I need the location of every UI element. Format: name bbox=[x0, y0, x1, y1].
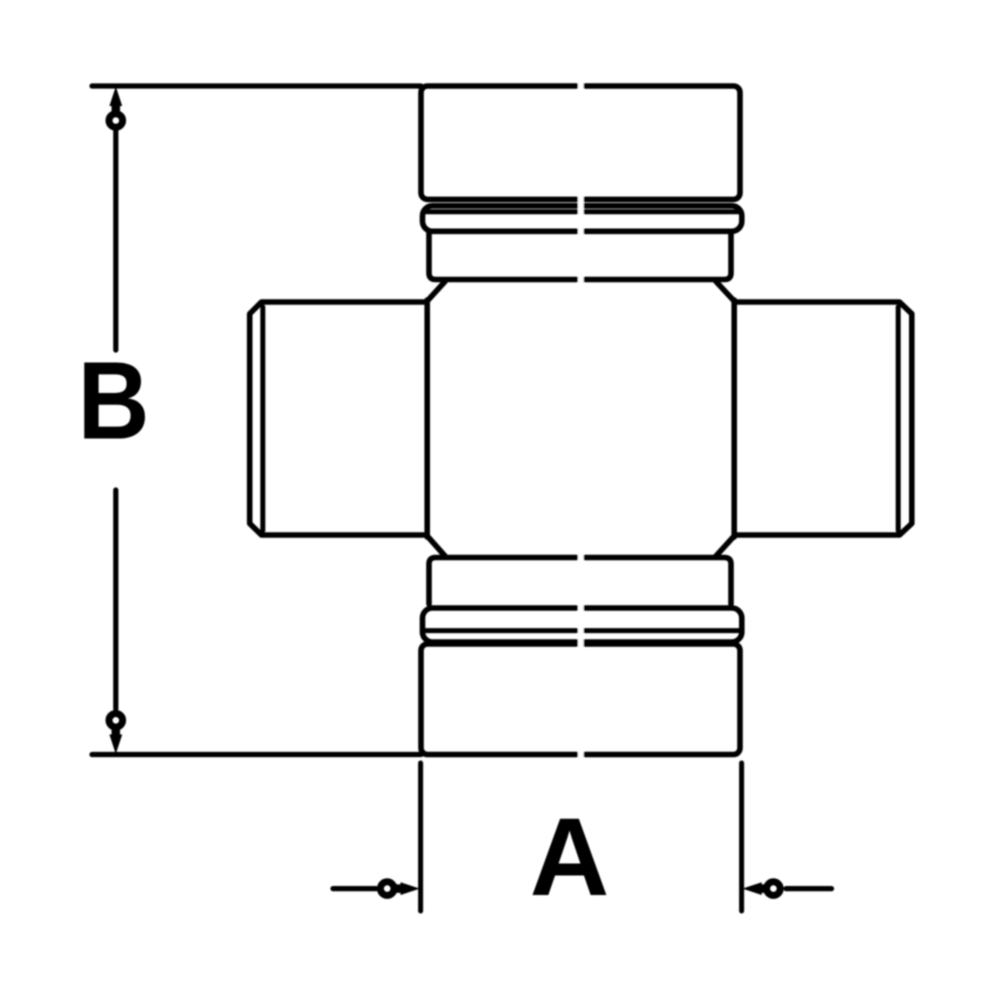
svg-text:A: A bbox=[530, 796, 610, 919]
svg-text:B: B bbox=[78, 340, 150, 463]
